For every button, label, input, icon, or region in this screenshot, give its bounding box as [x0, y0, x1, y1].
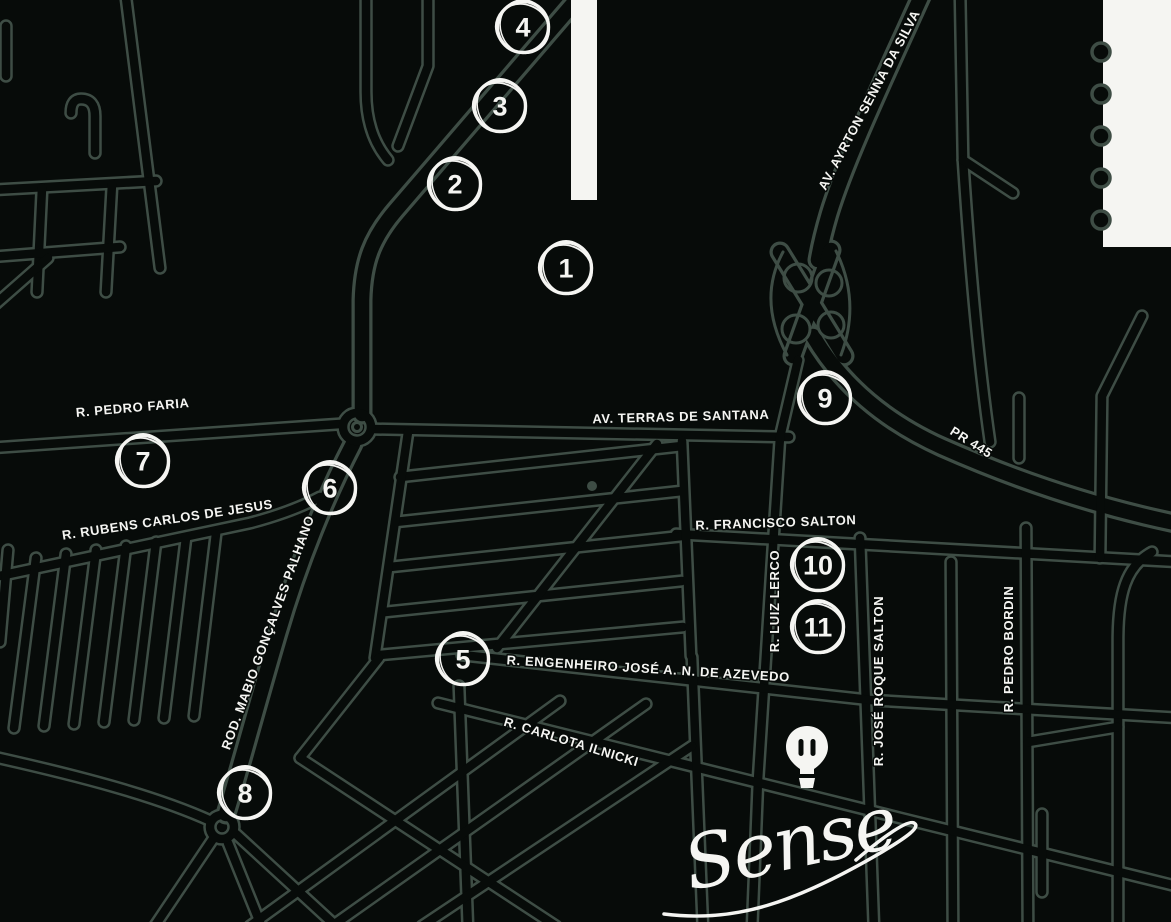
hot-air-balloon-icon: [786, 726, 828, 788]
marker-number: 3: [492, 92, 507, 122]
map-edge-white-area: [1092, 0, 1171, 247]
marker-number: 6: [322, 474, 337, 504]
street-label-pedro-faria: R. PEDRO FARIA: [75, 395, 190, 420]
highlighted-road-segment: [571, 0, 597, 200]
marker-number: 5: [455, 645, 470, 675]
map-canvas: R. PEDRO FARIAR. RUBENS CARLOS DE JESUSA…: [0, 0, 1171, 922]
street-label-ayrton-senna-da-silva: AV. AYRTON SENNA DA SILVA: [815, 7, 923, 192]
street-label-jose-roque-salton: R. JOSÉ ROQUE SALTON: [871, 596, 886, 766]
marker-number: 4: [515, 13, 530, 43]
map-stage: R. PEDRO FARIAR. RUBENS CARLOS DE JESUSA…: [0, 0, 1171, 922]
mini-roundabout-dot: [587, 481, 597, 491]
marker-number: 1: [558, 254, 573, 284]
marker-number: 10: [803, 551, 833, 581]
street-label-mabio-goncalves-palhano: ROD. MABIO GONÇALVES PALHANO: [218, 513, 317, 751]
marker-number: 7: [135, 447, 150, 477]
marker-number: 2: [447, 170, 462, 200]
street-label-terras-de-santana: AV. TERRAS DE SANTANA: [592, 407, 769, 427]
street-label-luiz-lerco: R. LUIZ LERCO: [767, 550, 782, 652]
location-marker-1: 1: [531, 235, 599, 302]
street-label-francisco-salton: R. FRANCISCO SALTON: [695, 512, 857, 533]
location-marker-11: 11: [783, 594, 851, 661]
marker-number: 9: [817, 384, 832, 414]
marker-number: 11: [804, 613, 833, 643]
roundabout-center: [353, 423, 362, 432]
street-label-pedro-bordin: R. PEDRO BORDIN: [1001, 586, 1016, 713]
marker-number: 8: [237, 779, 252, 809]
